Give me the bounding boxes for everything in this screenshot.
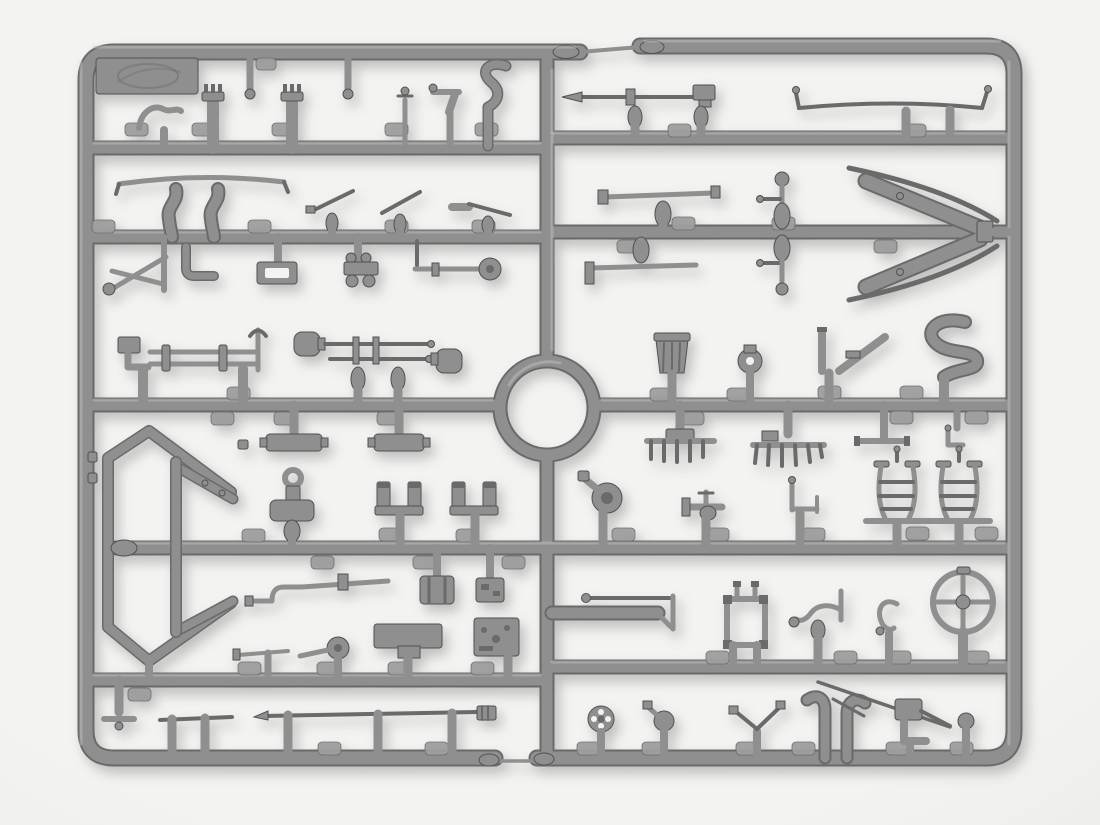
part-equipment-box xyxy=(476,548,504,602)
sprue-photo xyxy=(0,0,1100,825)
part-capped-cylinder-1 xyxy=(202,84,224,148)
part-lance xyxy=(562,85,715,138)
part-seat-back-frame xyxy=(723,581,768,667)
part-rod-with-disc xyxy=(415,241,501,280)
long-diagonal-rod xyxy=(818,682,950,727)
top-break-rod xyxy=(580,47,640,52)
runner-bullet-tip xyxy=(111,540,137,556)
part-manifold-rake-2 xyxy=(753,405,824,466)
part-seat-support xyxy=(817,327,885,405)
part-manifold-rake-1 xyxy=(647,405,714,462)
part-z-linkage xyxy=(245,574,388,606)
part-wide-plate xyxy=(374,624,442,680)
injection-ring xyxy=(500,361,594,455)
part-swingletree xyxy=(793,86,992,139)
part-jack-tripod xyxy=(103,237,166,295)
part-twisted-lever xyxy=(789,591,841,667)
part-capped-cylinder-2 xyxy=(281,84,303,148)
part-square-elbow xyxy=(186,247,214,276)
photo-background xyxy=(0,0,1100,825)
part-stabilizer-bar-lower xyxy=(585,237,696,284)
part-s-pipe xyxy=(931,320,977,405)
part-rifle-rack xyxy=(118,330,266,405)
runner-main-pass xyxy=(86,41,1014,767)
brand-logo-tab xyxy=(96,58,198,94)
part-bow-rod xyxy=(116,177,288,194)
part-plunger-rods xyxy=(294,332,462,405)
part-pin-rod xyxy=(398,87,412,148)
part-elbow-stacks xyxy=(807,682,950,758)
part-pipe-rod-assembly xyxy=(552,594,673,630)
sprue xyxy=(81,41,1014,767)
part-strap-with-ring xyxy=(270,470,314,548)
part-pistol-grip xyxy=(429,84,459,148)
part-kingpin-lower xyxy=(757,235,791,295)
